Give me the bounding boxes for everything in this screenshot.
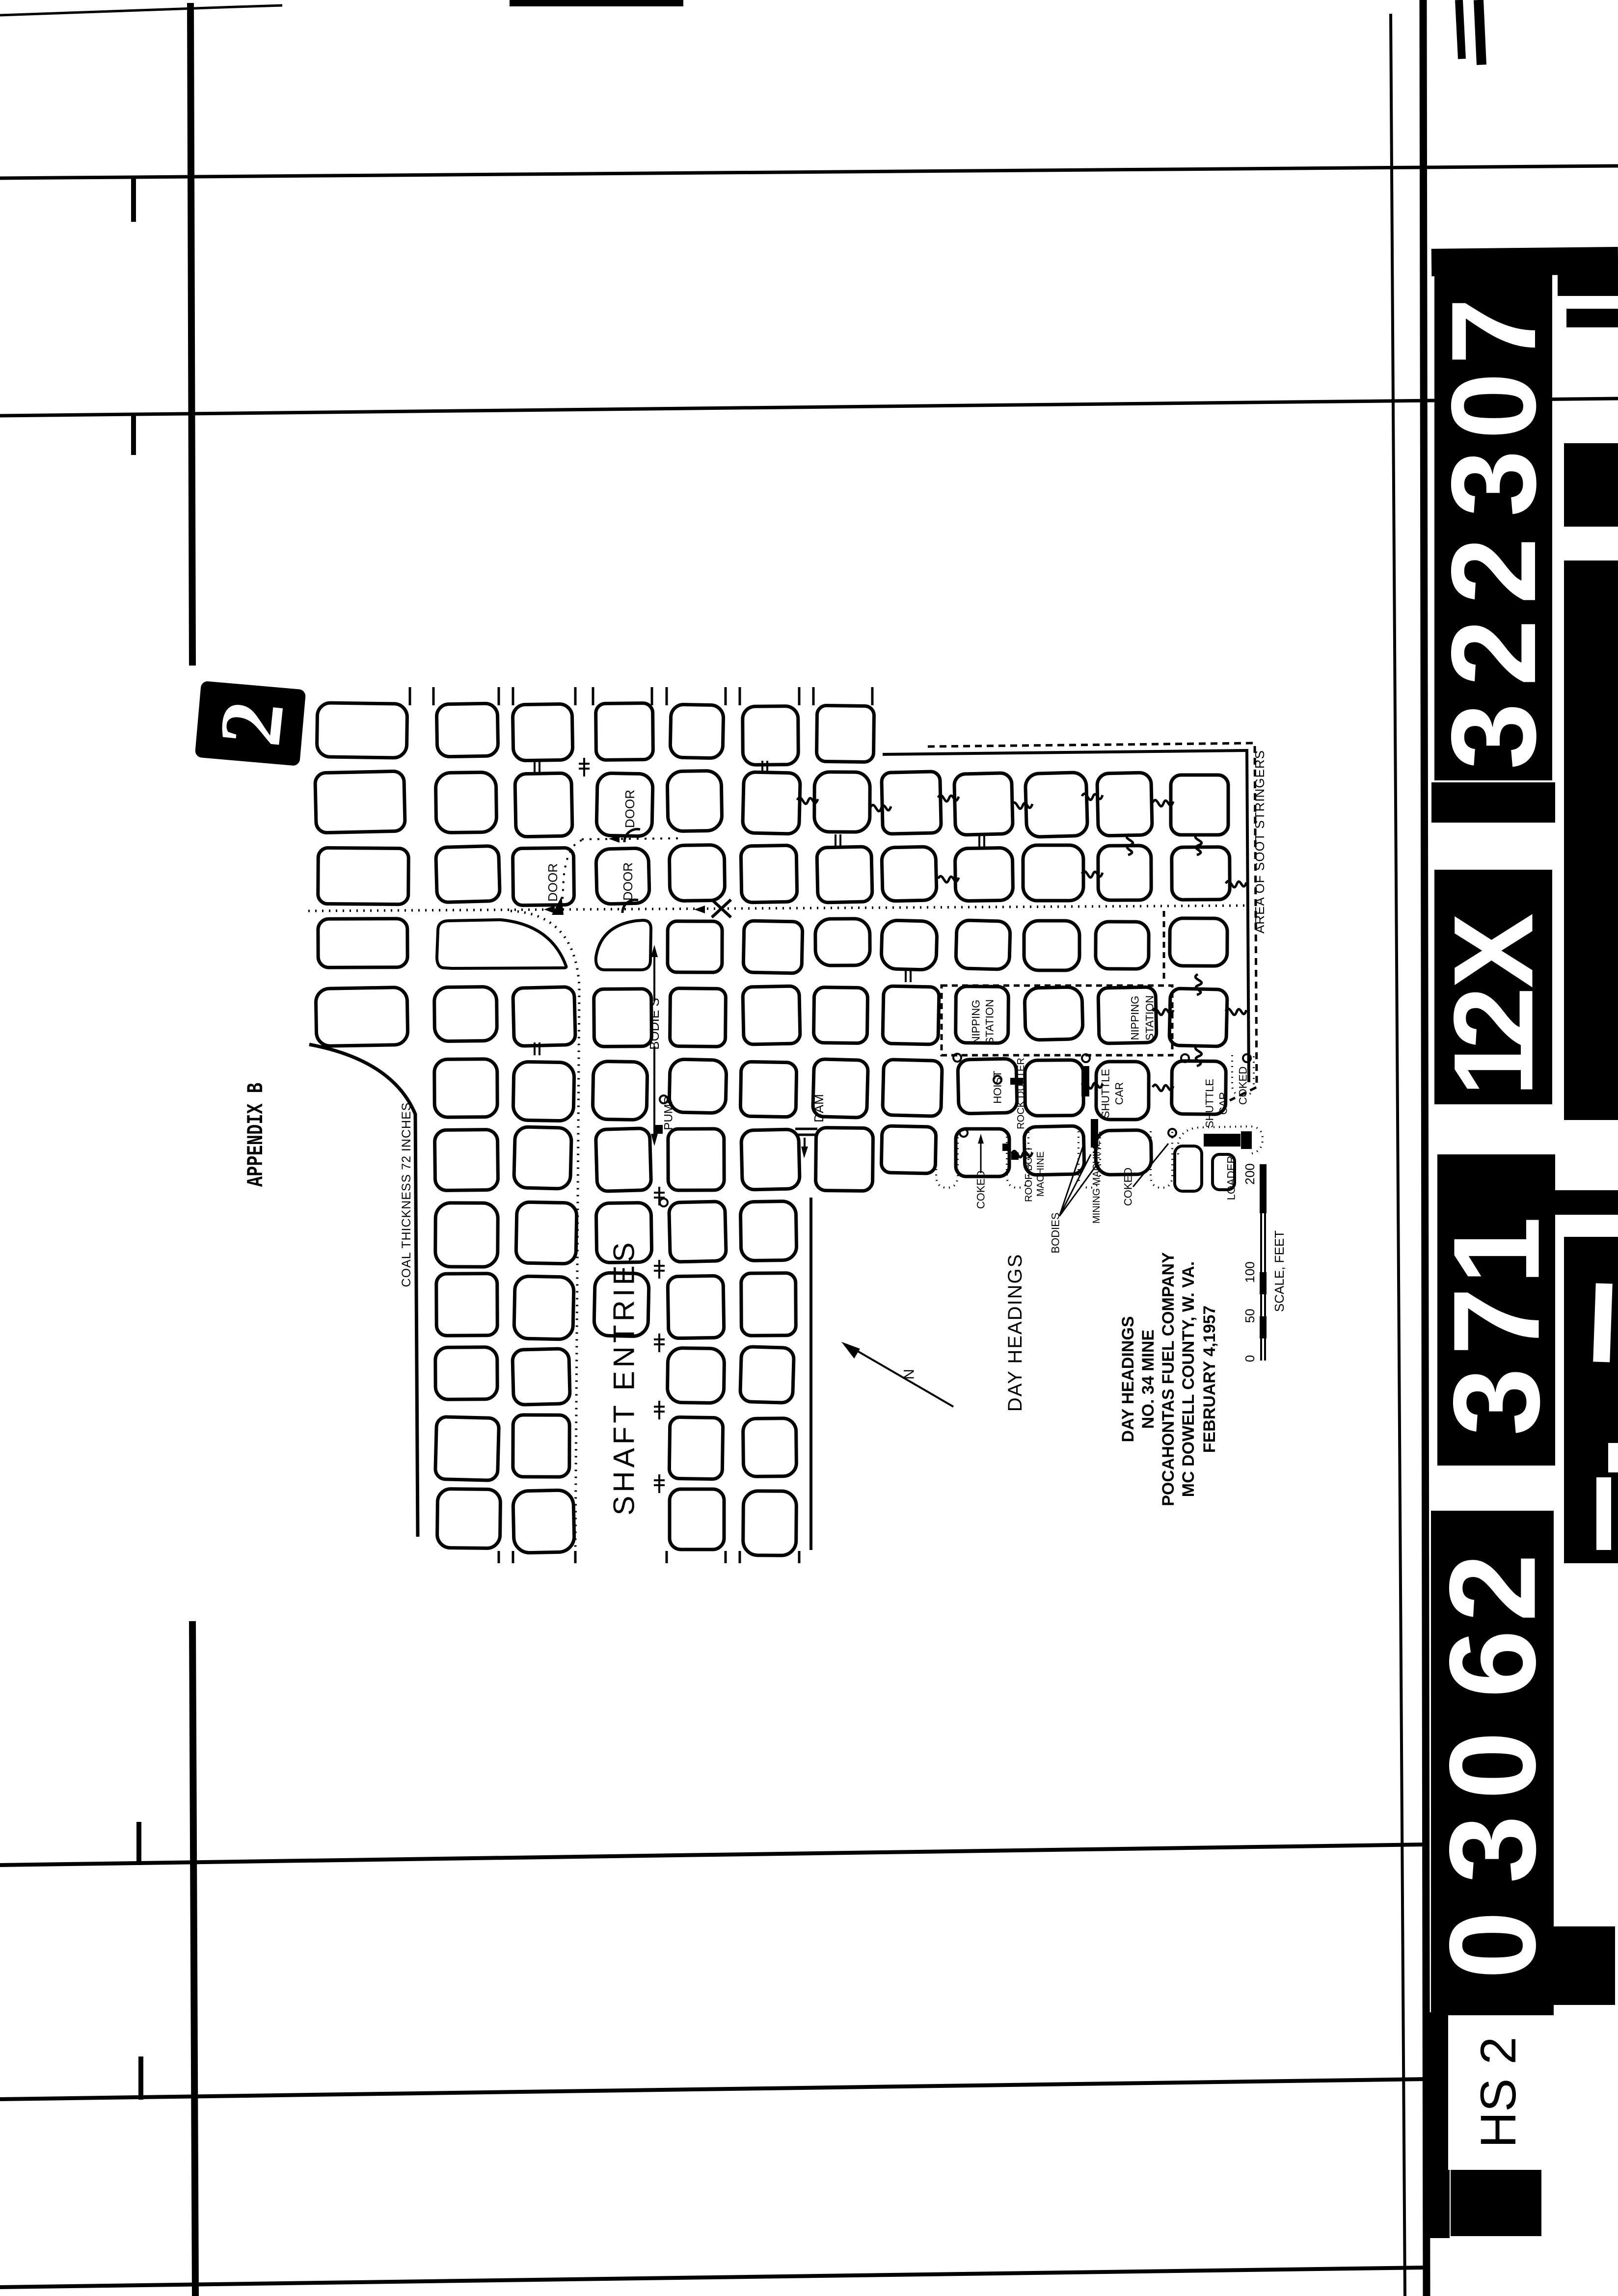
svg-text:DAM: DAM (811, 1094, 826, 1122)
svg-text:HS 2: HS 2 (1470, 2037, 1526, 2148)
svg-text:COKED: COKED (1237, 1067, 1249, 1105)
svg-text:SHUTTLE: SHUTTLE (1100, 1069, 1112, 1118)
svg-text:COAL THICKNESS 72 INCHES: COAL THICKNESS 72 INCHES (400, 1102, 413, 1287)
svg-text:0: 0 (1424, 1911, 1561, 1979)
svg-text:0: 0 (1424, 1731, 1561, 1799)
svg-text:X: X (1430, 913, 1557, 988)
svg-text:7: 7 (1426, 298, 1561, 365)
svg-text:COKED: COKED (975, 1171, 987, 1209)
svg-text:BODIE S: BODIE S (647, 998, 662, 1049)
svg-text:NIPPING: NIPPING (970, 1000, 982, 1044)
svg-text:100: 100 (1242, 1261, 1257, 1282)
svg-text:1: 1 (1430, 1034, 1557, 1096)
svg-text:SHUTTLE: SHUTTLE (1204, 1079, 1216, 1128)
svg-text:LOADER: LOADER (1225, 1156, 1238, 1200)
svg-text:FEBRUARY 4,1957: FEBRUARY 4,1957 (1200, 1306, 1219, 1453)
svg-text:3: 3 (1426, 450, 1561, 517)
svg-text:NIPPING: NIPPING (1129, 996, 1141, 1040)
svg-text:SCALE, FEET: SCALE, FEET (1272, 1230, 1287, 1312)
svg-text:SHAFT ENTRIES: SHAFT ENTRIES (608, 1239, 641, 1515)
svg-text:STATION: STATION (984, 999, 996, 1044)
svg-text:MINING MACHINE: MINING MACHINE (1091, 1140, 1102, 1224)
svg-text:2: 2 (1426, 537, 1561, 604)
svg-text:ROOF BOLT: ROOF BOLT (1024, 1146, 1034, 1202)
svg-text:0: 0 (1426, 373, 1561, 439)
svg-text:CAR: CAR (1113, 1082, 1126, 1105)
svg-text:200: 200 (1242, 1163, 1257, 1184)
svg-text:BODIES: BODIES (1050, 1212, 1062, 1253)
svg-text:DAY HEADINGS: DAY HEADINGS (1119, 1316, 1137, 1442)
svg-text:STATION: STATION (1144, 995, 1156, 1041)
svg-text:APPENDIX B: APPENDIX B (243, 1083, 269, 1187)
svg-text:1: 1 (1428, 1216, 1565, 1284)
svg-text:PUMP: PUMP (662, 1096, 675, 1130)
svg-text:50: 50 (1242, 1309, 1257, 1323)
svg-text:COKED: COKED (1122, 1168, 1134, 1206)
svg-text:N: N (901, 1369, 917, 1380)
svg-text:0: 0 (1242, 1355, 1257, 1362)
svg-text:7: 7 (1428, 1287, 1565, 1355)
svg-text:3: 3 (1424, 1815, 1561, 1883)
svg-text:DOOR: DOOR (620, 862, 635, 901)
svg-text:2: 2 (1424, 1553, 1561, 1622)
svg-text:MACHINE: MACHINE (1035, 1151, 1046, 1197)
svg-text:POCAHONTAS FUEL COMPANY: POCAHONTAS FUEL COMPANY (1159, 1252, 1178, 1506)
svg-text:3: 3 (1426, 703, 1561, 770)
svg-text:MC DOWELL COUNTY, W. VA.: MC DOWELL COUNTY, W. VA. (1179, 1261, 1198, 1497)
svg-text:AREA OF SOOT STRINGERS: AREA OF SOOT STRINGERS (1252, 750, 1267, 934)
svg-text:DOOR: DOOR (622, 790, 637, 828)
svg-text:NO. 34 MINE: NO. 34 MINE (1139, 1330, 1158, 1429)
svg-text:DAY HEADINGS: DAY HEADINGS (1004, 1254, 1026, 1412)
svg-text:CAR: CAR (1217, 1092, 1230, 1115)
svg-text:ROCK DUSTER: ROCK DUSTER (1016, 1058, 1026, 1129)
svg-text:2: 2 (1426, 619, 1561, 686)
svg-text:3: 3 (1428, 1367, 1565, 1436)
svg-text:6: 6 (1424, 1629, 1561, 1698)
svg-text:DOOR: DOOR (545, 863, 560, 902)
